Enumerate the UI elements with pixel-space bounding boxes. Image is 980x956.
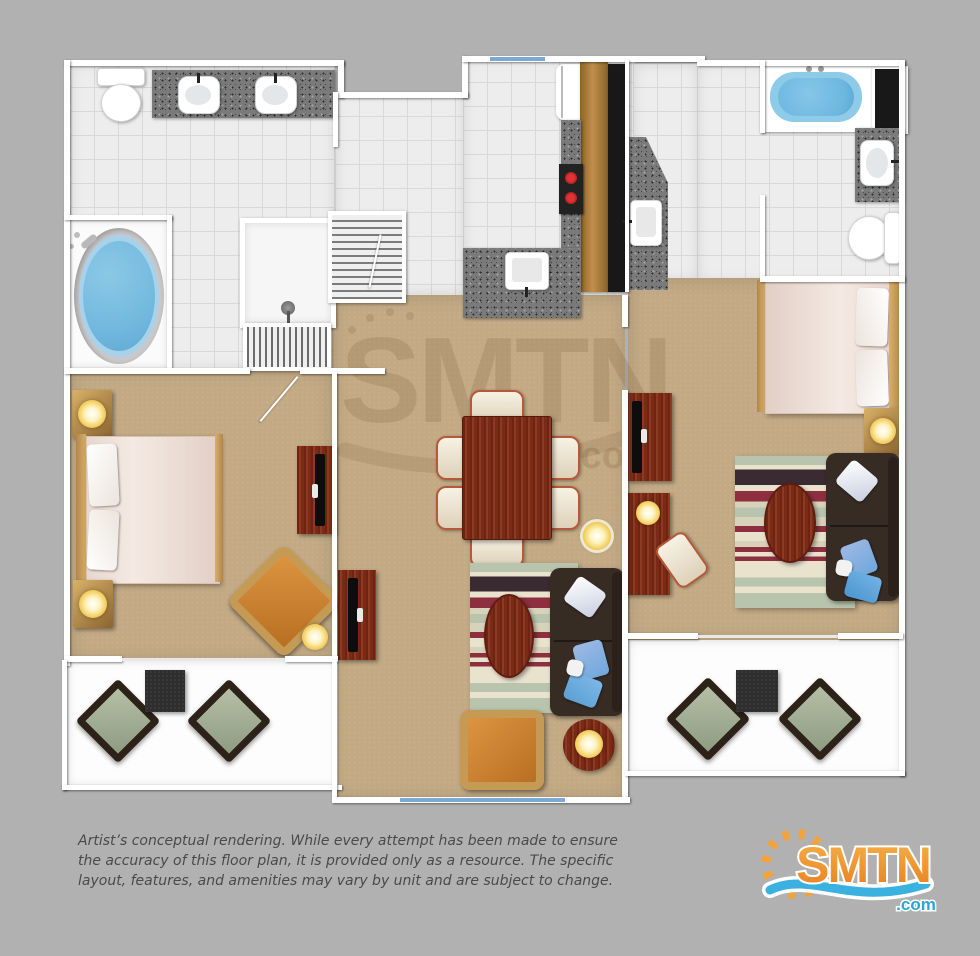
- tv-stand-nub: [641, 429, 647, 443]
- footboard: [215, 434, 223, 582]
- tub-water: [778, 78, 854, 116]
- wall: [622, 295, 628, 327]
- sink-icon: [860, 140, 894, 186]
- shower-arm: [287, 311, 290, 323]
- tub-water: [83, 241, 155, 351]
- wall: [760, 276, 905, 282]
- disclaimer-text: Artist’s conceptual rendering. While eve…: [78, 832, 638, 892]
- wall: [625, 771, 905, 776]
- sofa-back: [888, 457, 898, 597]
- fridge-seam: [561, 66, 563, 118]
- coffee-table: [764, 483, 816, 563]
- tub-faucet-icon: [818, 66, 824, 72]
- tv-stand: [626, 393, 672, 481]
- sink-basin: [636, 207, 656, 237]
- burner-icon: [565, 192, 577, 204]
- wall: [64, 60, 344, 66]
- lamp-icon: [575, 730, 603, 758]
- pillow-icon: [86, 443, 119, 506]
- lamp-icon: [79, 590, 107, 618]
- faucet-icon: [197, 73, 200, 83]
- sink-basin: [185, 85, 211, 105]
- wall: [64, 368, 250, 374]
- stove-icon: [559, 164, 583, 214]
- vanity-grate: [243, 323, 331, 371]
- footboard: [757, 280, 765, 412]
- sink-icon: [255, 76, 297, 114]
- pillow-icon: [855, 287, 889, 346]
- wall: [300, 368, 385, 374]
- floor-plan-canvas: SMTN .com: [0, 0, 980, 956]
- floor-lamp-icon: [302, 624, 328, 650]
- pillow-icon: [855, 349, 889, 406]
- wall: [760, 195, 765, 280]
- wall: [332, 372, 337, 660]
- hall-sink-icon: [630, 200, 662, 246]
- wall: [62, 660, 67, 790]
- sofa-seam: [554, 640, 612, 642]
- dining-chair: [548, 486, 580, 530]
- smtn-logo-graphic: SMTN .com: [756, 820, 971, 920]
- tub-faucet-icon: [806, 66, 812, 72]
- burner-icon: [565, 172, 577, 184]
- tv-stand: [338, 570, 376, 660]
- louvered-closet: [328, 211, 406, 303]
- floor-lamp-icon: [583, 522, 611, 550]
- wall: [625, 60, 629, 292]
- headboard: [76, 434, 86, 582]
- wall: [838, 633, 903, 639]
- wall: [64, 215, 172, 220]
- coffee-table: [484, 594, 534, 678]
- wall: [62, 785, 342, 790]
- sink-icon: [178, 76, 220, 114]
- shower-stall: [240, 218, 336, 328]
- wall: [697, 60, 905, 66]
- sink-basin: [866, 148, 888, 178]
- jacuzzi-tub-icon: [74, 228, 164, 364]
- wall: [332, 660, 337, 797]
- sofa-seam: [830, 525, 888, 527]
- bathtub-icon: [770, 72, 862, 122]
- armchair: [460, 710, 544, 790]
- sofa-back: [612, 572, 622, 712]
- sink-basin: [262, 85, 288, 105]
- wall: [333, 92, 338, 147]
- bubble-icon: [74, 232, 80, 238]
- dresser: [297, 446, 335, 534]
- wood-counter: [580, 62, 608, 292]
- faucet-icon: [274, 73, 277, 83]
- desk-lamp-icon: [636, 501, 660, 525]
- patio-table: [145, 670, 185, 712]
- lamp-icon: [870, 418, 896, 444]
- smtn-logo: SMTN .com: [756, 820, 971, 920]
- wall: [622, 390, 628, 800]
- tv-stand-nub: [312, 484, 318, 498]
- dining-table: [462, 416, 552, 540]
- sliding-glass-door: [400, 798, 565, 802]
- wall: [462, 56, 468, 98]
- wall: [338, 92, 468, 98]
- sliding-glass-door: [698, 635, 838, 638]
- wall: [64, 656, 122, 662]
- wall: [167, 215, 172, 370]
- kitchen-sink-icon: [505, 252, 549, 290]
- wall: [899, 60, 905, 776]
- sliding-glass-door: [122, 658, 287, 661]
- logo-suffix-text: .com: [896, 895, 936, 914]
- wall: [760, 60, 765, 133]
- sink-basin: [512, 258, 542, 282]
- lamp-icon: [78, 400, 106, 428]
- pillow-icon: [86, 509, 119, 570]
- wall: [64, 60, 70, 666]
- logo-brand-text: SMTN: [796, 837, 930, 893]
- wall: [285, 656, 338, 662]
- faucet-icon: [525, 287, 528, 297]
- patio-table: [736, 670, 778, 712]
- tv-stand-nub: [357, 608, 363, 622]
- bar-counter: [608, 64, 626, 292]
- window-icon: [490, 57, 545, 61]
- toilet-bowl-icon: [101, 84, 141, 122]
- dining-chair: [548, 436, 580, 480]
- refrigerator-icon: [556, 64, 582, 120]
- wall: [628, 633, 698, 639]
